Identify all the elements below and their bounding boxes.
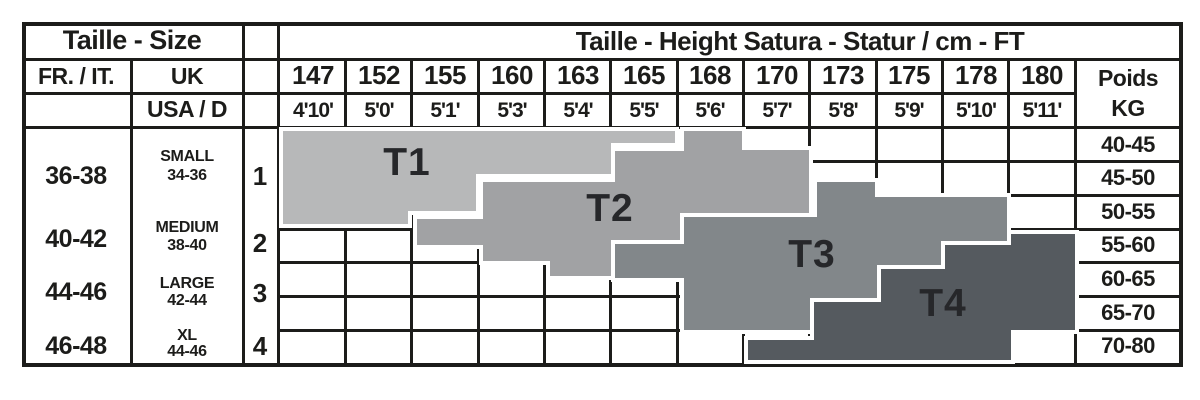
grid-line-under-cm-row [22,92,1076,95]
size-uk-range-2: 38-40 [167,237,207,254]
weight-row-4: 55-60 [1101,232,1155,257]
height-cm-col6: 165 [623,60,665,90]
size-uk-label-3: LARGE [160,275,215,292]
header-kg: KG [1111,95,1145,121]
header-usa-d: USA / D [147,96,227,122]
zone-t4-label: T4 [919,282,967,325]
size-uk-label-4: XL [177,327,197,344]
weight-row-6: 65-70 [1101,300,1155,325]
height-cm-col4: 160 [491,60,533,90]
height-ft-col5: 5'4' [563,99,592,122]
weight-row-5: 60-65 [1101,266,1155,291]
header-poids: Poids [1098,65,1158,91]
size-fr-it-3: 44-46 [45,278,106,306]
size-usa-2: 2 [253,228,267,258]
size-fr-it-1: 36-38 [45,162,107,190]
height-ft-col6: 5'5' [629,99,658,122]
size-uk-label-2: MEDIUM [155,219,218,236]
height-cm-col8: 170 [756,60,798,90]
height-cm-col11: 178 [955,60,997,90]
height-ft-col1: 4'10' [293,99,333,122]
height-ft-col9: 5'8' [828,99,857,122]
height-cm-col7: 168 [689,60,731,90]
height-ft-col8: 5'7' [762,99,791,122]
size-uk-range-1: 34-36 [167,167,207,184]
height-ft-col2: 5'0' [364,99,393,122]
size-uk-label-1: SMALL [160,148,214,165]
zone-t2-label: T2 [586,187,634,230]
size-uk-range-4: 44-46 [167,343,207,360]
height-ft-col11: 5'10' [956,99,996,122]
height-cm-col5: 163 [557,60,599,90]
height-cm-col3: 155 [424,60,466,90]
size-fr-it-4: 46-48 [45,332,107,360]
zone-t1-label: T1 [383,141,431,184]
height-cm-col12: 180 [1021,60,1063,90]
title-left: Taille - Size [63,25,202,55]
size-usa-3: 3 [253,278,267,308]
weight-column: 40-45 45-50 50-55 55-60 60-65 65-70 70-8… [1101,132,1155,358]
height-cm-col1: 147 [292,60,334,90]
weight-row-3: 50-55 [1101,199,1155,224]
height-ft-col10: 5'9' [894,99,923,122]
header-uk: UK [171,63,204,89]
height-cm-col2: 152 [358,60,400,90]
size-chart-table: T1 T2 T3 T4 Taille - Size Taille - Heigh… [0,0,1200,400]
weight-row-1: 40-45 [1101,132,1155,157]
size-chart-page: T1 T2 T3 T4 Taille - Size Taille - Heigh… [0,0,1200,400]
height-ft-col3: 5'1' [430,99,459,122]
height-ft-col7: 5'6' [695,99,724,122]
size-uk-range-3: 42-44 [167,292,207,309]
grid-line-right-border [1179,22,1183,367]
height-cm-col10: 175 [888,60,930,90]
zone-t3-label: T3 [788,233,836,276]
size-usa-1: 1 [253,161,267,191]
grid-line-frit-uk [130,58,133,366]
height-cm-col9: 173 [822,60,864,90]
height-ft-col4: 5'3' [497,99,526,122]
title-right: Taille - Height Satura - Statur / cm - F… [576,26,1025,56]
weight-row-2: 45-50 [1101,165,1155,190]
weight-row-7: 70-80 [1101,333,1155,358]
size-fr-it-2: 40-42 [45,225,106,253]
size-usa-4: 4 [253,331,268,361]
grid-line-left-border [22,22,26,367]
height-ft-col12: 5'11' [1023,99,1062,122]
header-fr-it: FR. / IT. [38,63,114,89]
grid-line-uk-narrow [242,22,245,366]
